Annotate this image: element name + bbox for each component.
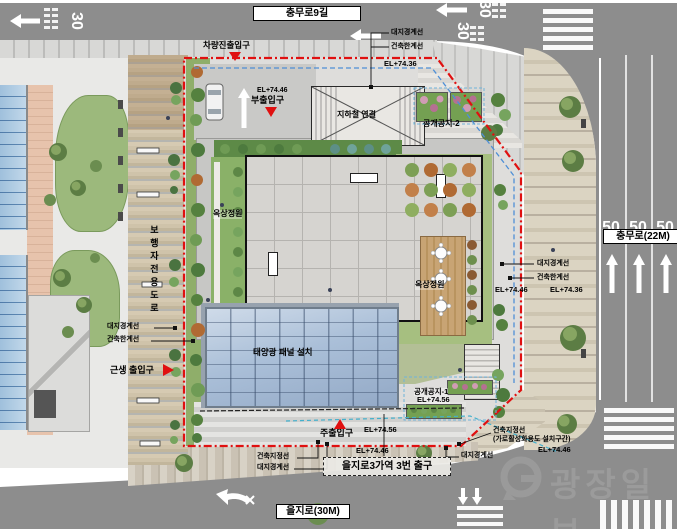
building-limit-label-r: 건축한계선 [537, 274, 569, 282]
watermark-text: 광장일보 [550, 458, 677, 529]
site-boundary-label-tr: 대지경계선 [391, 29, 423, 37]
subway-link-label: 지하철 연결 [337, 111, 376, 120]
vehicle-entrance-label: 차량진출입구 [203, 41, 250, 50]
solar-panel-label: 태양광 패널 설치 [253, 348, 312, 357]
site-boundary-label-bl: 대지경계선 [257, 464, 289, 472]
neighborhood-entrance-marker [163, 364, 174, 376]
station-exit-box: 을지로3가역 3번 출구 [323, 457, 451, 476]
sub-entrance-marker [265, 107, 277, 117]
building-limit-label-l: 건축한계선 [107, 336, 139, 344]
leader-lines [151, 33, 534, 469]
annotation-lines-layer [0, 0, 677, 529]
site-plan-canvas: 30 30 30 50 50 50 [0, 0, 677, 529]
el-top-label: EL+74.36 [384, 60, 417, 68]
main-entrance-label: 주출입구 [320, 429, 353, 439]
site-boundary-label-br: 대지경계선 [461, 452, 493, 460]
open-space-1-el: EL+74.56 [417, 396, 450, 404]
building-designation-line [200, 408, 464, 411]
el-bottom: EL+74.46 [356, 447, 389, 455]
street-box-top: 충무로9길 [253, 6, 361, 21]
el-right-1: EL+74.46 [495, 286, 528, 294]
pedestrian-road-label: 보행자전용도로 [148, 225, 158, 330]
rooftop-garden-label-west: 옥상정원 [213, 210, 242, 219]
leader-dots [173, 85, 512, 450]
site-boundary-label-l: 대지경계선 [107, 323, 139, 331]
el-right-2: EL+74.36 [550, 286, 583, 294]
street-box-right: 충무로(22M) [603, 229, 677, 244]
street-activation-label: (가로활성화용도 설치구간) [493, 436, 570, 444]
sub-entrance-el-label: EL+74.46 [257, 87, 288, 95]
site-boundary-label-r: 대지경계선 [537, 260, 569, 268]
neighborhood-entrance-label: 근생 출입구 [110, 366, 154, 376]
building-designation-label-br: 건축지정선 [493, 427, 525, 435]
sub-entrance-label: 부출입구 [251, 96, 284, 106]
building-limit-label-tr: 건축한계선 [391, 43, 423, 51]
open-space-2-label: 공개공지-2 [423, 120, 460, 129]
main-entrance-el: EL+74.56 [364, 426, 397, 434]
newspaper-logo-icon [494, 452, 550, 508]
rooftop-garden-label-east: 옥상정원 [415, 281, 444, 290]
building-designation-label-bl: 건축지정선 [257, 453, 289, 461]
vehicle-entrance-marker [229, 52, 241, 61]
street-box-bottom: 을지로(30M) [276, 504, 350, 519]
main-entrance-marker [334, 419, 346, 429]
